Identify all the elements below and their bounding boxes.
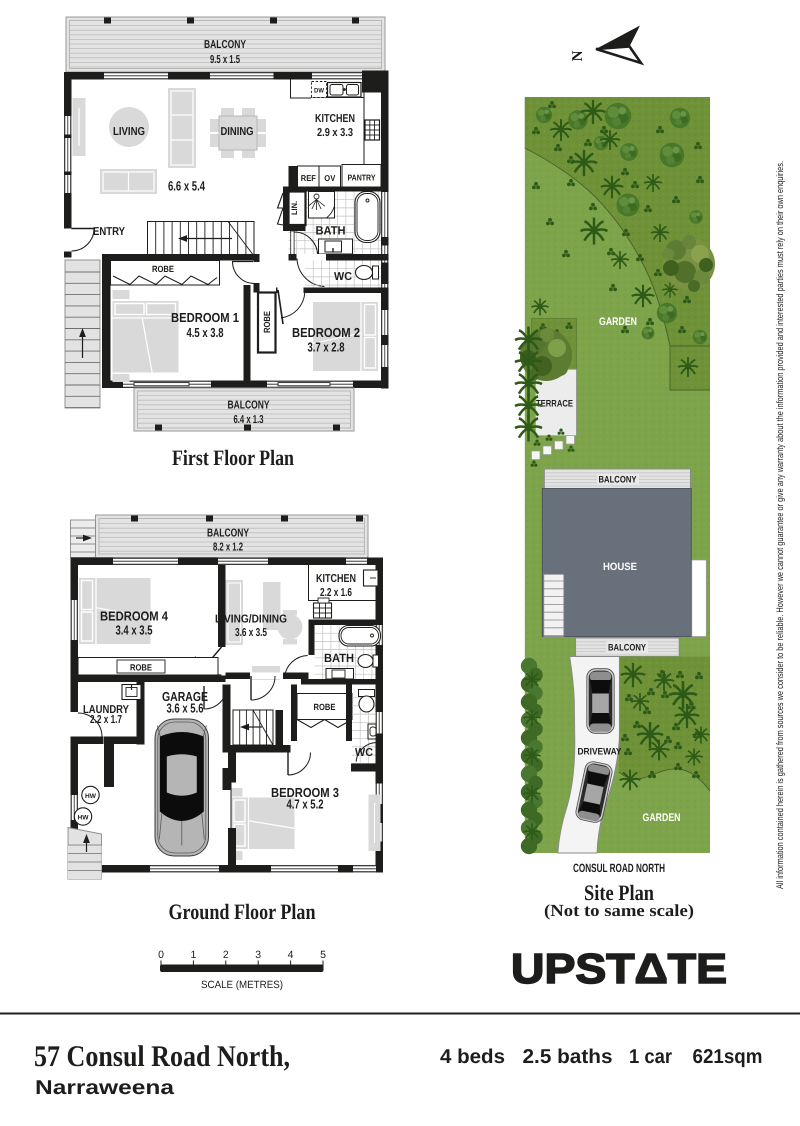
svg-text:2.9 x 3.3: 2.9 x 3.3 [317,127,353,139]
svg-text:TERRACE: TERRACE [536,399,573,410]
svg-text:All information contained here: All information contained herein is gath… [775,161,786,889]
svg-text:BALCONY: BALCONY [228,400,270,412]
svg-text:HW: HW [78,815,90,822]
svg-text:BATH: BATH [324,651,354,665]
svg-text:DW: DW [314,88,325,95]
svg-text:4.5 x 3.8: 4.5 x 3.8 [187,325,224,340]
svg-text:KITCHEN: KITCHEN [315,113,355,125]
svg-text:LIN.: LIN. [290,201,299,215]
svg-text:HOUSE: HOUSE [603,561,637,573]
svg-text:2: 2 [223,949,229,961]
svg-text:ROBE: ROBE [130,663,152,673]
svg-text:HW: HW [85,793,97,800]
svg-text:4 beds: 4 beds [440,1046,505,1068]
svg-text:KITCHEN: KITCHEN [316,573,356,585]
svg-text:UPSTΔTE: UPSTΔTE [511,945,727,992]
svg-text:DINING: DINING [221,126,254,138]
svg-text:3.7 x 2.8: 3.7 x 2.8 [308,340,345,355]
svg-text:3.6 x 3.5: 3.6 x 3.5 [235,627,267,639]
svg-text:BEDROOM 1: BEDROOM 1 [171,310,239,325]
svg-text:8.2 x 1.2: 8.2 x 1.2 [213,542,243,554]
svg-text:(Not to same scale): (Not to same scale) [544,901,694,920]
svg-text:ROBE: ROBE [262,311,272,333]
svg-text:4: 4 [288,949,294,961]
svg-text:9.5 x 1.5: 9.5 x 1.5 [210,54,240,66]
svg-text:57 Consul Road North,: 57 Consul Road North, [34,1040,290,1073]
svg-text:GARDEN: GARDEN [599,316,637,328]
svg-text:0: 0 [158,949,164,961]
svg-text:CONSUL ROAD NORTH: CONSUL ROAD NORTH [573,861,665,875]
svg-text:LIVING: LIVING [113,126,145,138]
svg-text:WC: WC [334,271,352,283]
svg-text:First Floor Plan: First Floor Plan [172,445,294,470]
svg-text:BALCONY: BALCONY [599,475,638,486]
svg-text:6.4 x 1.3: 6.4 x 1.3 [234,414,264,426]
svg-text:5: 5 [320,949,326,961]
svg-text:BALCONY: BALCONY [608,643,647,654]
svg-text:ROBE: ROBE [152,264,174,274]
svg-text:OV: OV [324,173,335,183]
svg-text:1 car: 1 car [629,1046,672,1068]
svg-text:ENTRY: ENTRY [93,226,125,238]
svg-text:LIVING/DINING: LIVING/DINING [215,614,287,626]
svg-text:BATH: BATH [316,224,346,238]
svg-text:BEDROOM 4: BEDROOM 4 [100,609,169,624]
svg-text:ROBE: ROBE [314,702,336,712]
svg-text:DRIVEWAY: DRIVEWAY [578,747,623,758]
svg-text:PANTRY: PANTRY [348,173,376,183]
svg-text:3.6 x 5.6: 3.6 x 5.6 [167,701,204,716]
svg-text:1: 1 [190,949,196,961]
svg-text:2.5 baths: 2.5 baths [523,1046,613,1068]
svg-text:6.6 x 5.4: 6.6 x 5.4 [168,179,205,194]
svg-text:Ground Floor Plan: Ground Floor Plan [169,899,316,924]
svg-text:BALCONY: BALCONY [204,39,246,51]
svg-text:3.4 x 3.5: 3.4 x 3.5 [116,623,153,638]
svg-text:BALCONY: BALCONY [207,528,249,540]
svg-text:BEDROOM 2: BEDROOM 2 [292,325,360,340]
svg-text:REF: REF [301,173,316,183]
svg-text:4.7 x 5.2: 4.7 x 5.2 [287,797,324,812]
svg-text:N: N [570,50,586,61]
svg-text:GARDEN: GARDEN [643,812,681,824]
svg-text:3: 3 [255,949,261,961]
svg-text:Narraweena: Narraweena [35,1077,175,1099]
svg-text:2.2 x 1.6: 2.2 x 1.6 [320,587,352,599]
svg-text:SCALE (METRES): SCALE (METRES) [201,979,283,991]
svg-text:WC: WC [355,747,373,759]
svg-text:621sqm: 621sqm [693,1046,763,1068]
